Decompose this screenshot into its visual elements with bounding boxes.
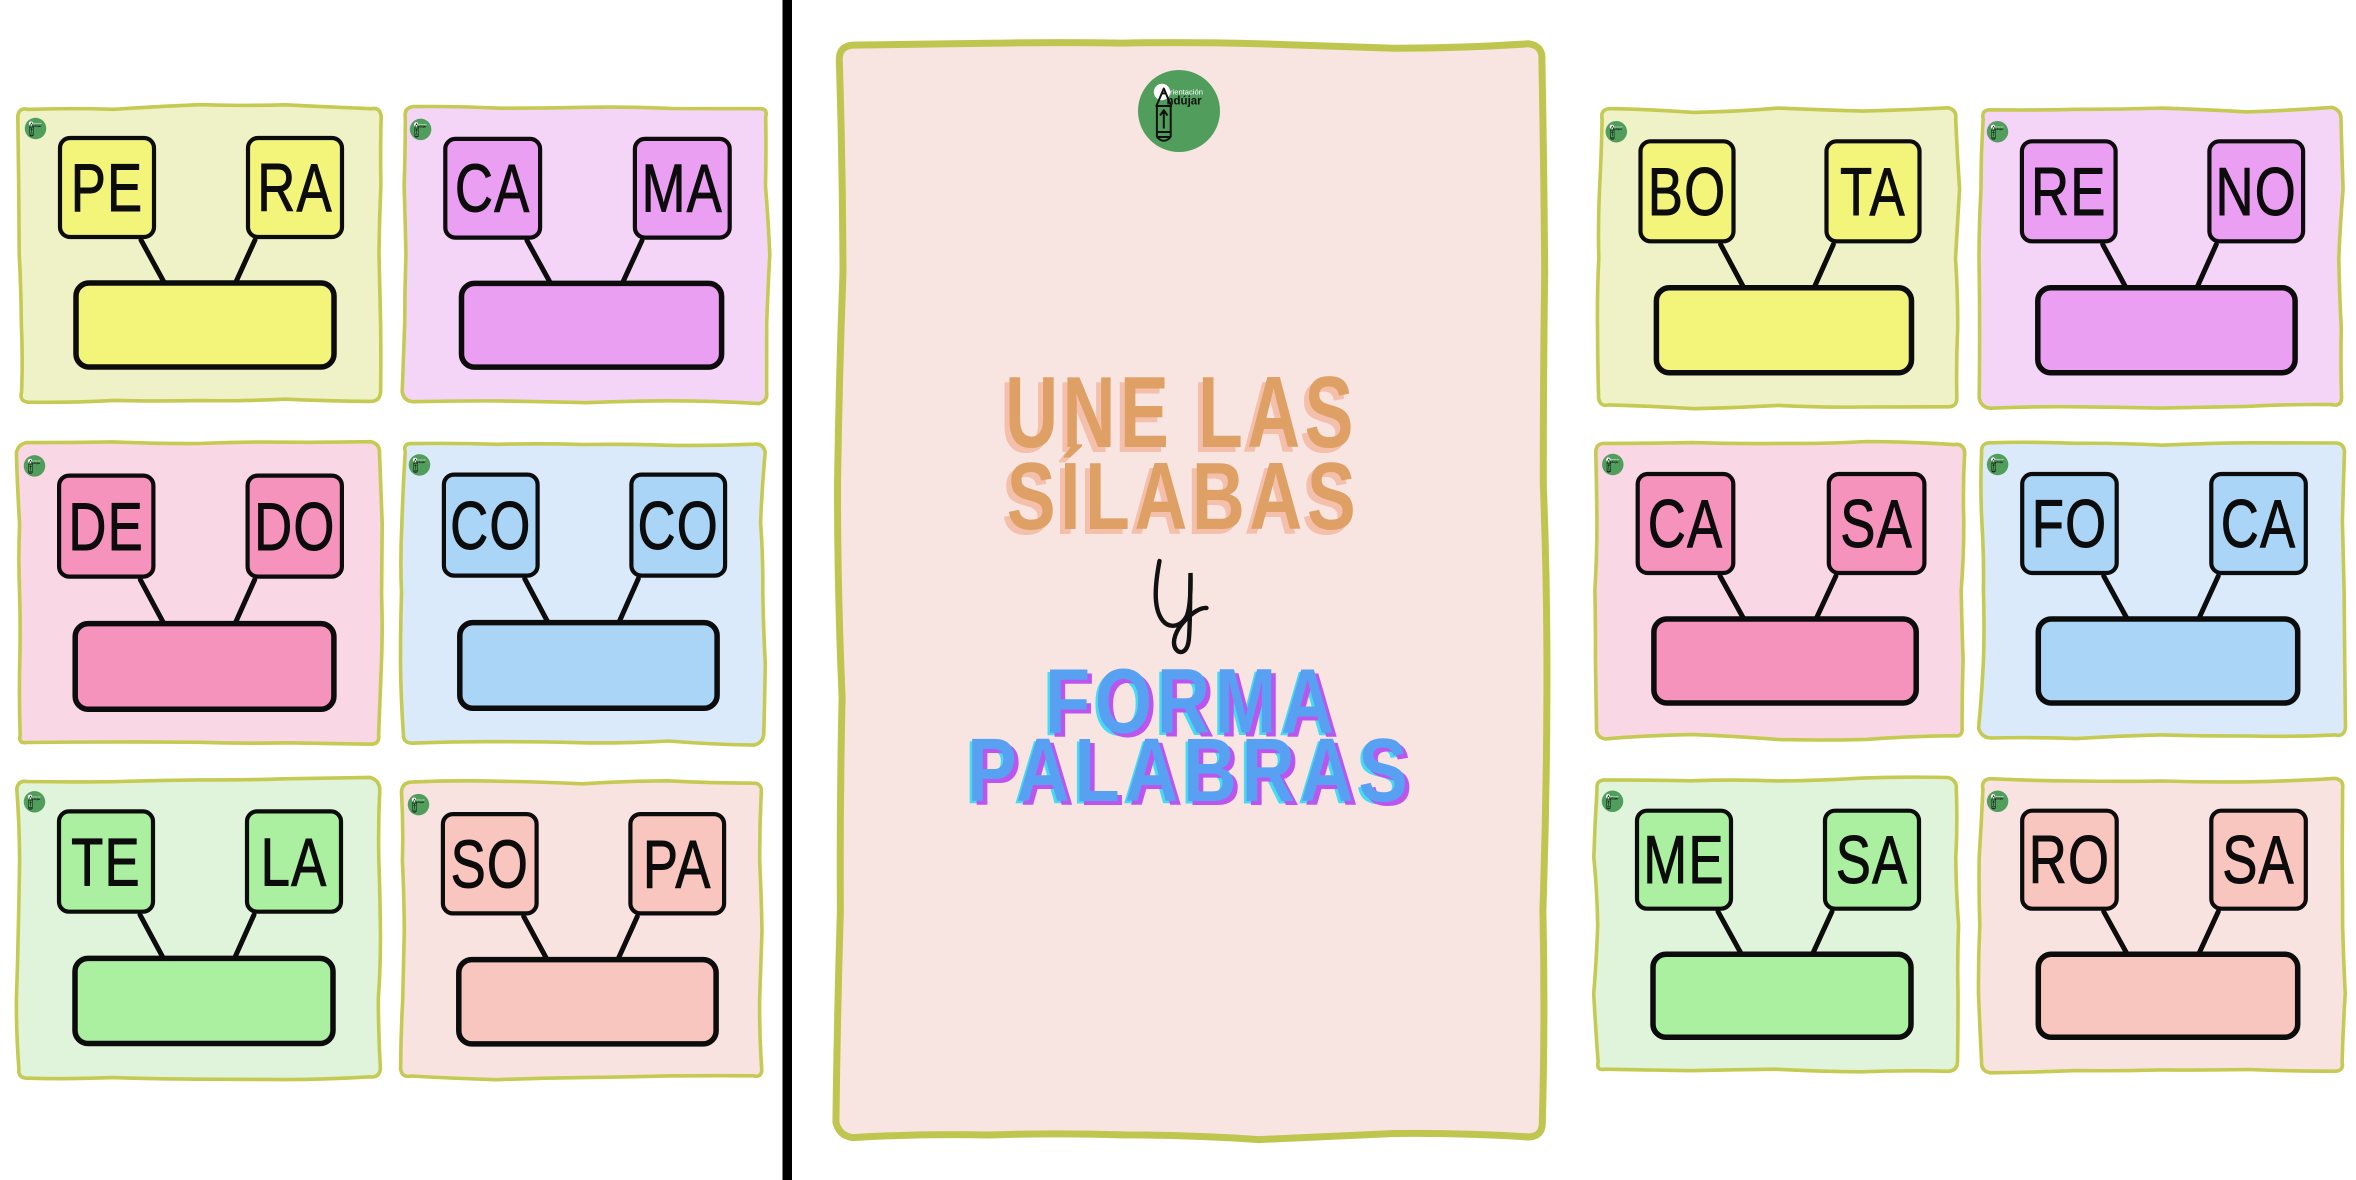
svg-text:CO: CO — [450, 488, 531, 564]
svg-text:BO: BO — [1648, 154, 1726, 230]
svg-text:CA: CA — [2221, 486, 2297, 562]
svg-text:SA: SA — [2222, 821, 2295, 897]
svg-text:SA: SA — [1840, 486, 1913, 562]
svg-text:FO: FO — [2032, 486, 2108, 562]
svg-text:TE: TE — [71, 824, 141, 900]
svg-text:RO: RO — [2029, 821, 2110, 897]
svg-text:CA: CA — [1648, 486, 1724, 562]
svg-text:CO: CO — [638, 488, 719, 564]
svg-text:MA: MA — [642, 150, 723, 226]
svg-text:RE: RE — [2031, 154, 2107, 230]
svg-text:ME: ME — [1643, 821, 1724, 897]
svg-text:DE: DE — [68, 489, 144, 565]
svg-text:PE: PE — [71, 150, 144, 226]
svg-text:PA: PA — [643, 826, 712, 902]
svg-text:SA: SA — [1836, 821, 1909, 897]
svg-text:SO: SO — [451, 826, 529, 902]
svg-text:CA: CA — [455, 150, 531, 226]
svg-text:NO: NO — [2216, 154, 2297, 230]
svg-text:SÍLABAS: SÍLABAS — [1007, 444, 1361, 551]
svg-text:DO: DO — [254, 489, 335, 565]
svg-text:TA: TA — [1840, 154, 1906, 230]
svg-text:RA: RA — [257, 150, 333, 226]
svg-text:LA: LA — [261, 824, 328, 900]
svg-text:PALABRAS: PALABRAS — [967, 720, 1412, 820]
